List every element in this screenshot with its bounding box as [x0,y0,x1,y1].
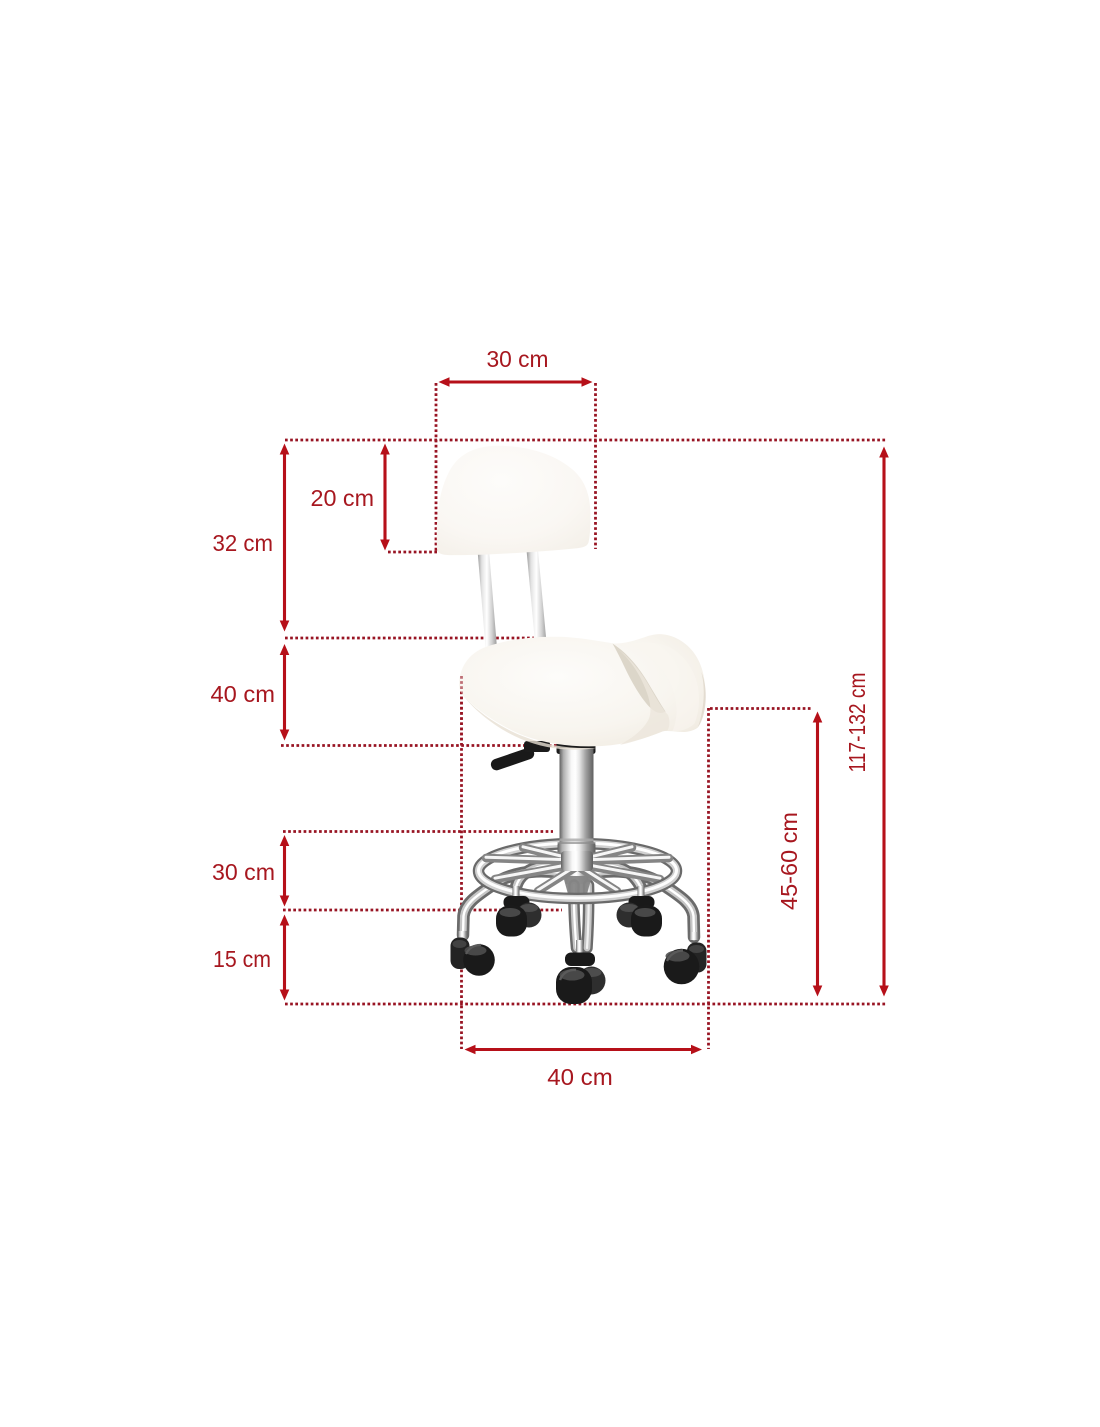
svg-text:117-132 cm: 117-132 cm [844,673,870,773]
svg-text:32 cm: 32 cm [213,530,274,556]
svg-text:45-60 cm: 45-60 cm [776,812,802,910]
svg-text:40 cm: 40 cm [547,1064,613,1090]
svg-text:20 cm: 20 cm [311,485,375,511]
svg-text:30 cm: 30 cm [212,859,275,885]
svg-text:30 cm: 30 cm [487,346,549,372]
svg-text:15 cm: 15 cm [213,946,271,972]
svg-text:40 cm: 40 cm [211,681,276,707]
